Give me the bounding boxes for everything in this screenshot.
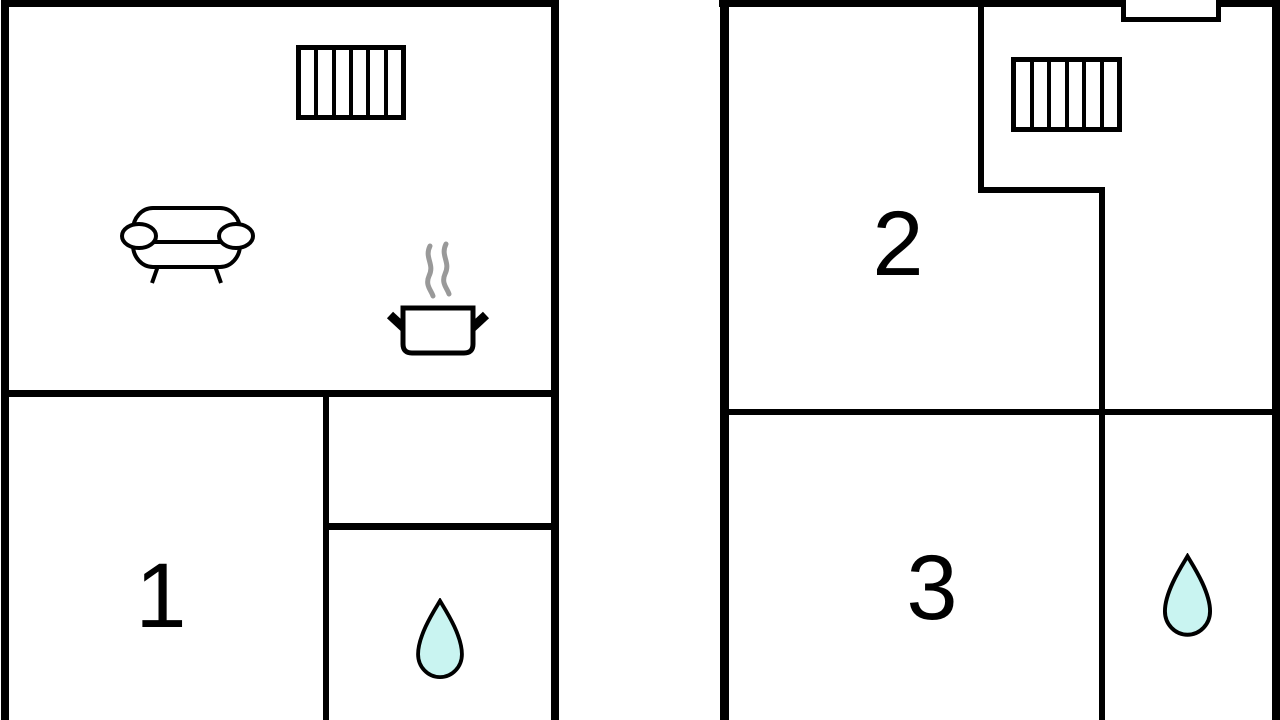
wall-segment [720,0,729,720]
wall-notch-side [1121,0,1126,22]
window-pane [336,50,353,115]
window-pane [1104,62,1118,127]
water-drop-icon [1162,553,1213,638]
wall-segment [719,0,1126,7]
window-icon [296,45,406,120]
cooking-pot-icon [383,240,493,360]
wall-segment [1272,0,1280,720]
pot-body [403,308,473,353]
wall-segment [1099,187,1105,720]
window-pane [1034,62,1052,127]
sofa-icon [115,200,260,290]
wall-notch-side [1216,0,1221,22]
window-pane [1069,62,1087,127]
wall-segment [1,0,9,720]
room-label-2: 2 [872,198,923,290]
wall-segment [323,523,559,530]
wall-segment [720,409,1280,415]
window-pane [318,50,335,115]
window-pane [1051,62,1069,127]
window-pane [353,50,370,115]
steam-line [444,244,449,294]
window-pane [370,50,387,115]
water-drop-shape [1165,556,1210,634]
wall-segment [978,0,984,193]
steam-line [428,246,433,296]
wall-segment [323,390,329,720]
room-label-3: 3 [906,542,957,634]
window-pane [301,50,318,115]
wall-notch-bottom [1121,17,1221,22]
wall-segment [551,0,559,720]
room-label-1: 1 [135,550,186,642]
water-drop-icon [415,598,465,680]
window-icon [1011,57,1122,132]
window-pane [1086,62,1104,127]
window-pane [1016,62,1034,127]
floorplan-canvas: 1 2 3 [0,0,1280,720]
wall-segment [1,0,559,7]
water-drop-shape [418,601,462,677]
wall-segment [1,390,559,397]
wall-segment [1216,0,1280,7]
wall-segment [978,187,1104,193]
window-pane [388,50,401,115]
